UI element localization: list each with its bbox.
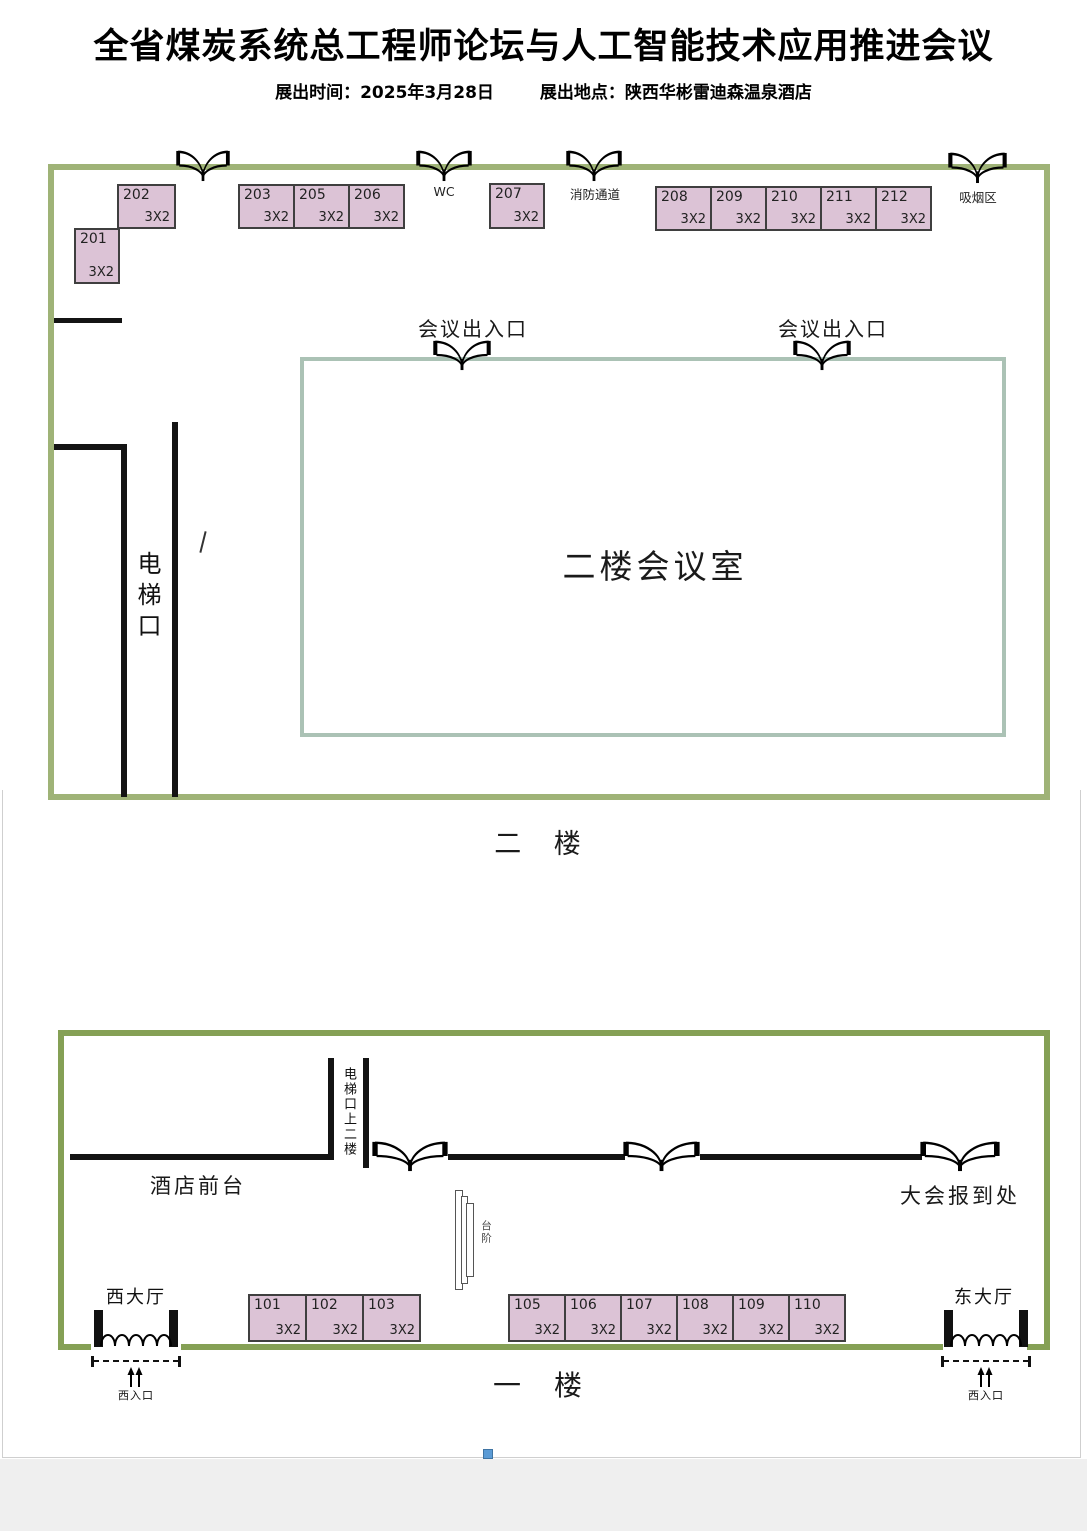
booth-205: 205 3X2 (293, 184, 350, 229)
booth-209: 209 3X2 (710, 186, 767, 231)
booth-size: 3X2 (647, 1323, 672, 1340)
booth-201: 201 3X2 (74, 228, 120, 284)
front-desk-label: 酒店前台 (150, 1170, 246, 1200)
meeting-entrance-label-1: 会议出入口 (418, 313, 528, 342)
smoking-area-label: 吸烟区 (948, 187, 1008, 206)
meeting-room-label: 二楼会议室 (450, 540, 860, 588)
booth-107: 107 3X2 (620, 1294, 678, 1342)
wall (700, 1154, 922, 1160)
resize-handle[interactable] (483, 1449, 493, 1459)
threshold-line (93, 1360, 179, 1362)
subtitle-row: 展出时间：2025年3月28日 展出地点：陕西华彬雷迪森温泉酒店 (0, 78, 1087, 103)
booth-size: 3X2 (846, 212, 871, 229)
elevator-to-floor2-label: 电梯口上二楼 (339, 1067, 358, 1157)
booth-size: 3X2 (264, 210, 289, 227)
booth-number: 107 (626, 1296, 653, 1314)
booth-number: 101 (254, 1296, 281, 1314)
booth-size: 3X2 (591, 1323, 616, 1340)
booth-size: 3X2 (319, 210, 344, 227)
wall (328, 1058, 334, 1160)
booth-size: 3X2 (390, 1323, 415, 1340)
booth-number: 206 (354, 186, 381, 204)
booth-number: 110 (794, 1296, 821, 1314)
wall (54, 444, 127, 450)
wall (54, 318, 122, 323)
meeting-entrance-door-icon (793, 339, 851, 371)
booth-number: 201 (80, 230, 107, 248)
booth-size: 3X2 (333, 1323, 358, 1340)
booth-size: 3X2 (681, 212, 706, 229)
double-door-icon (176, 149, 230, 182)
elevator-label: 电梯口 (130, 551, 165, 644)
booth-number: 211 (826, 188, 853, 206)
threshold-line (943, 1360, 1029, 1362)
meeting-entrance-door-icon (433, 339, 491, 371)
booth-number: 105 (514, 1296, 541, 1314)
booth-size: 3X2 (514, 210, 539, 227)
booth-size: 3X2 (276, 1323, 301, 1340)
floor1-caption: 一 楼 (0, 1364, 1087, 1404)
corridor-door-icon (623, 1140, 700, 1172)
page-title: 全省煤炭系统总工程师论坛与人工智能技术应用推进会议 (0, 18, 1087, 69)
booth-size: 3X2 (145, 210, 170, 227)
east-hall-label: 东大厅 (954, 1283, 1014, 1309)
floor1-plan-border (58, 1344, 91, 1350)
booth-206: 206 3X2 (348, 184, 405, 229)
fire-exit-door-icon (566, 149, 622, 182)
booth-202: 202 3X2 (117, 184, 176, 229)
registration-label: 大会报到处 (900, 1180, 1020, 1210)
wall (448, 1154, 625, 1160)
booth-size: 3X2 (374, 210, 399, 227)
floor1-plan (58, 1030, 1050, 1036)
booth-108: 108 3X2 (676, 1294, 734, 1342)
page-edge-left (2, 790, 3, 1458)
booth-number: 209 (716, 188, 743, 206)
booth-size: 3X2 (759, 1323, 784, 1340)
booth-size: 3X2 (791, 212, 816, 229)
wc-label: WC (414, 184, 474, 199)
booth-size: 3X2 (736, 212, 761, 229)
booth-number: 207 (495, 185, 522, 203)
page-edge-right (1080, 790, 1081, 1458)
booth-109: 109 3X2 (732, 1294, 790, 1342)
booth-208: 208 3X2 (655, 186, 712, 231)
folding-door-icon (950, 1332, 1022, 1349)
wc-door-icon (416, 149, 472, 182)
booth-size: 3X2 (901, 212, 926, 229)
booth-number: 205 (299, 186, 326, 204)
booth-212: 212 3X2 (875, 186, 932, 231)
booth-number: 203 (244, 186, 271, 204)
folding-door-icon (100, 1332, 172, 1349)
wall (172, 422, 178, 797)
booth-number: 103 (368, 1296, 395, 1314)
floor1-plan-border (181, 1344, 943, 1350)
booth-207: 207 3X2 (489, 183, 545, 229)
floor2-caption: 二 楼 (0, 822, 1087, 861)
booth-101: 101 3X2 (248, 1294, 307, 1342)
booth-103: 103 3X2 (362, 1294, 421, 1342)
exhibit-venue: 展出地点：陕西华彬雷迪森温泉酒店 (540, 78, 812, 103)
booth-203: 203 3X2 (238, 184, 295, 229)
wall (121, 444, 127, 797)
booth-number: 102 (311, 1296, 338, 1314)
meeting-entrance-label-2: 会议出入口 (778, 313, 888, 342)
floor1-plan-border (58, 1030, 64, 1350)
fire-exit-label: 消防通道 (564, 184, 626, 203)
booth-number: 212 (881, 188, 908, 206)
exhibit-date: 展出时间：2025年3月28日 (275, 78, 494, 103)
booth-110: 110 3X2 (788, 1294, 846, 1342)
booth-size: 3X2 (703, 1323, 728, 1340)
booth-211: 211 3X2 (820, 186, 877, 231)
page-edge-bottom (2, 1457, 1081, 1458)
booth-102: 102 3X2 (305, 1294, 364, 1342)
registration-door-icon (920, 1140, 1000, 1172)
west-hall-label: 西大厅 (106, 1283, 166, 1309)
corridor-door-icon (372, 1140, 448, 1172)
booth-105: 105 3X2 (508, 1294, 566, 1342)
floor1-plan-border (1044, 1030, 1050, 1350)
canvas-background (0, 1459, 1087, 1531)
booth-size: 3X2 (815, 1323, 840, 1340)
booth-number: 106 (570, 1296, 597, 1314)
booth-size: 3X2 (535, 1323, 560, 1340)
booth-size: 3X2 (89, 265, 114, 282)
booth-number: 109 (738, 1296, 765, 1314)
booth-number: 108 (682, 1296, 709, 1314)
booth-210: 210 3X2 (765, 186, 822, 231)
booth-106: 106 3X2 (564, 1294, 622, 1342)
booth-number: 202 (123, 186, 150, 204)
booth-number: 208 (661, 188, 688, 206)
wall (363, 1058, 369, 1168)
stairs-label: 台阶 (479, 1220, 494, 1245)
front-desk-wall (70, 1154, 333, 1160)
smoking-area-door-icon (948, 151, 1007, 184)
booth-number: 210 (771, 188, 798, 206)
